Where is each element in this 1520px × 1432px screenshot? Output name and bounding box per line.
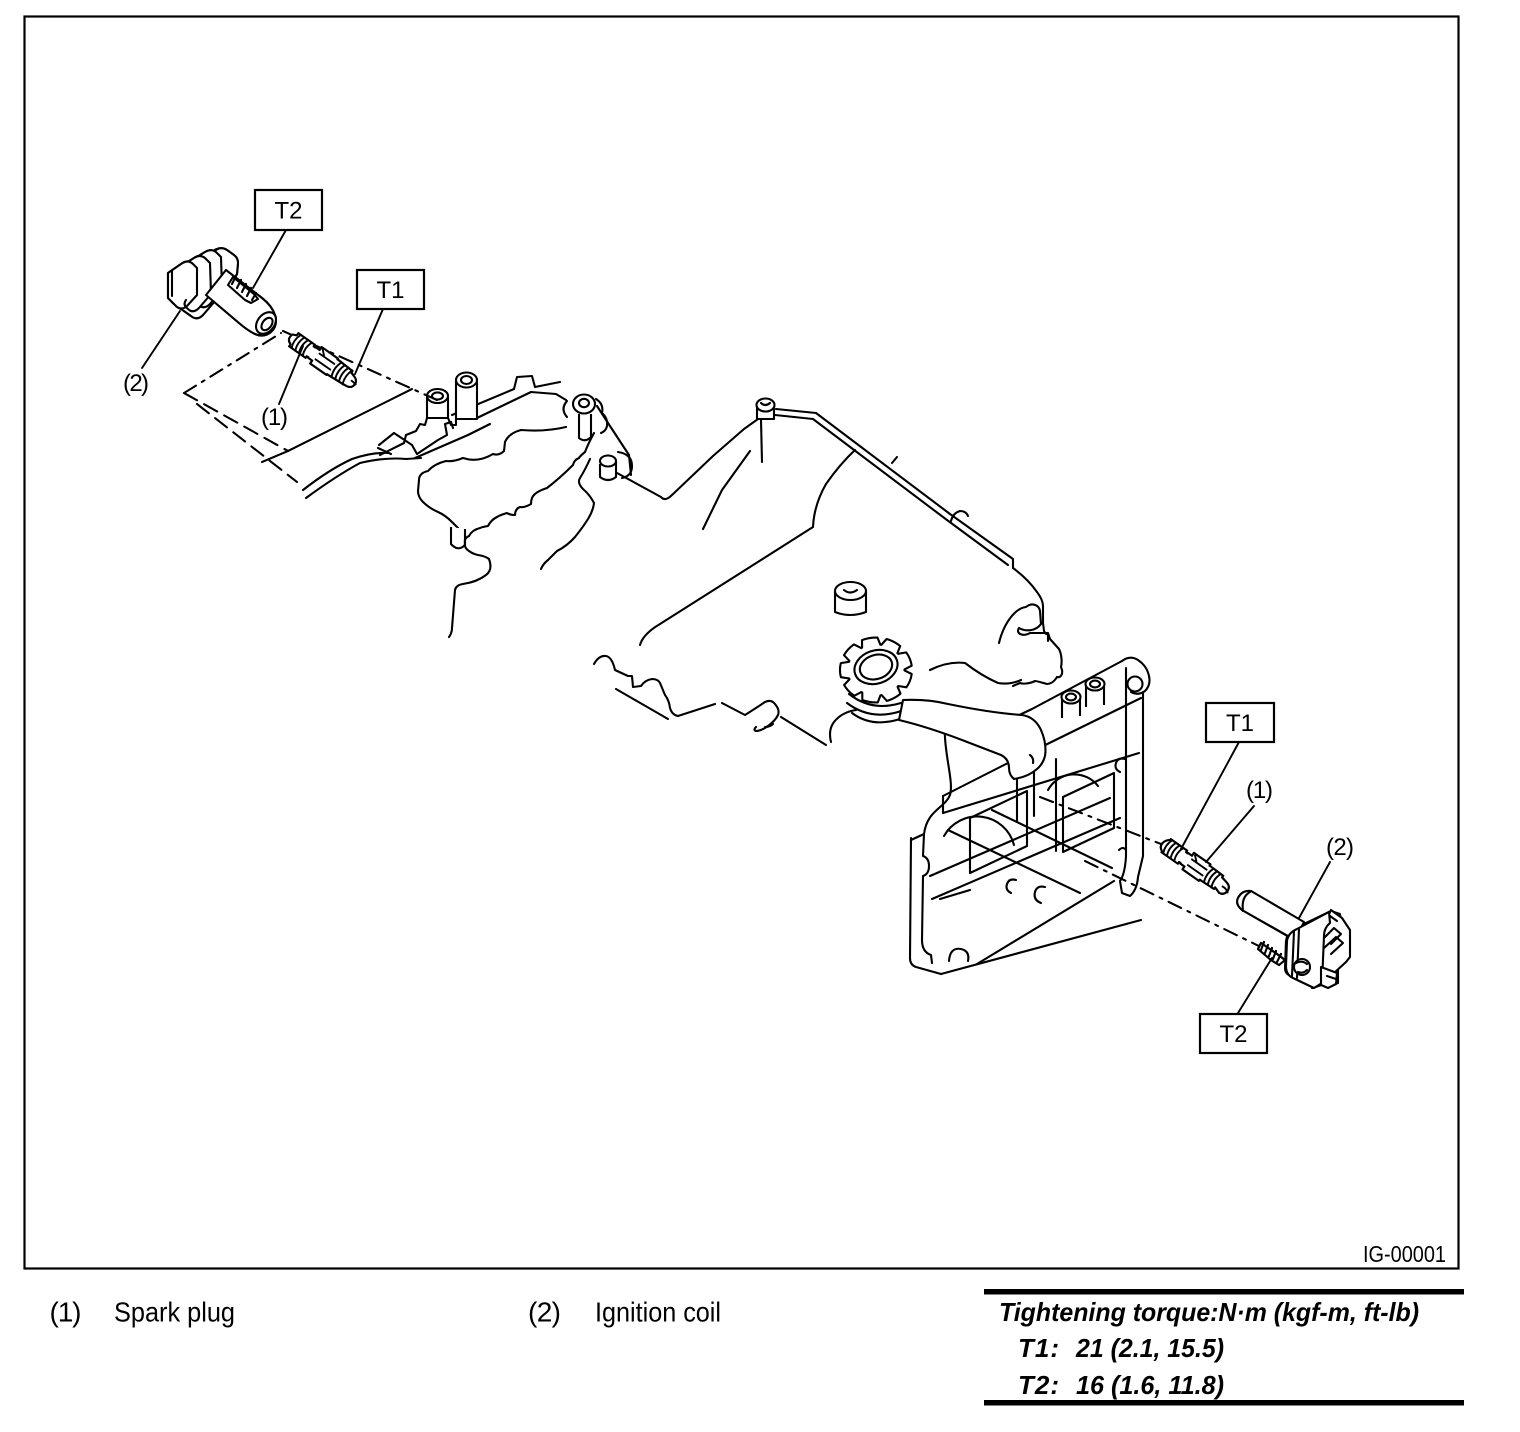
svg-text:21 (2.1, 15.5): 21 (2.1, 15.5) — [1075, 1333, 1224, 1363]
svg-text:Tightening torque:N·m (kgf-m,: Tightening torque:N·m (kgf-m, ft-lb) — [999, 1297, 1419, 1327]
svg-text:IG-00001: IG-00001 — [1363, 1241, 1446, 1267]
svg-text:(2): (2) — [123, 370, 149, 397]
svg-text:(1): (1) — [50, 1297, 82, 1328]
svg-text:T1:: T1: — [1018, 1333, 1059, 1363]
svg-text:T1: T1 — [1226, 710, 1254, 737]
svg-text:Spark plug: Spark plug — [114, 1297, 235, 1328]
svg-text:(2): (2) — [528, 1297, 561, 1328]
svg-text:(1): (1) — [1246, 777, 1273, 804]
svg-text:T2:: T2: — [1018, 1370, 1059, 1400]
svg-text:T1: T1 — [376, 277, 404, 304]
svg-text:T2: T2 — [1219, 1021, 1247, 1048]
svg-text:T2: T2 — [274, 198, 302, 225]
svg-text:16 (1.6, 11.8): 16 (1.6, 11.8) — [1076, 1370, 1224, 1400]
svg-text:(2): (2) — [1326, 834, 1354, 861]
svg-text:Ignition coil: Ignition coil — [595, 1297, 721, 1328]
svg-text:(1): (1) — [261, 404, 288, 431]
